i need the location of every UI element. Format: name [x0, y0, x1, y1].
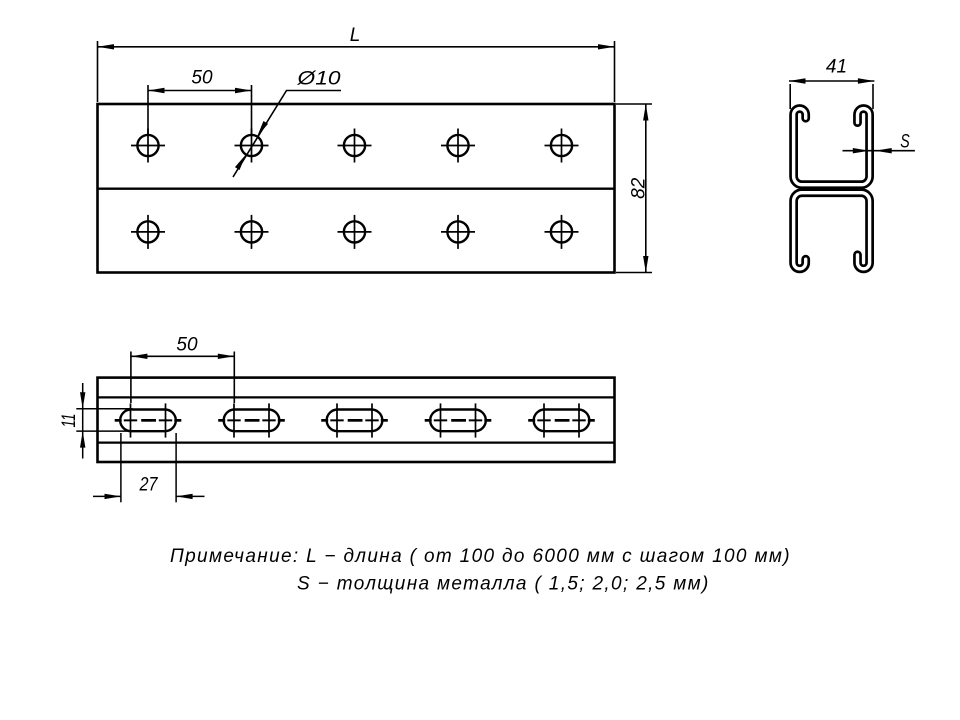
svg-text:Ø10: Ø10	[296, 69, 341, 90]
svg-text:L: L	[350, 25, 361, 46]
svg-text:50: 50	[176, 335, 198, 356]
svg-text:82: 82	[629, 177, 650, 199]
svg-text:Примечание: L − длина ( от 100: Примечание: L − длина ( от 100 до 6000 м…	[170, 546, 791, 567]
svg-text:S − толщина металла ( 1,5; 2,0: S − толщина металла ( 1,5; 2,0; 2,5 мм)	[297, 574, 710, 595]
svg-text:S: S	[900, 132, 910, 153]
svg-text:50: 50	[191, 68, 213, 89]
svg-text:11: 11	[59, 414, 80, 428]
svg-text:41: 41	[826, 57, 847, 78]
svg-text:27: 27	[139, 475, 159, 496]
